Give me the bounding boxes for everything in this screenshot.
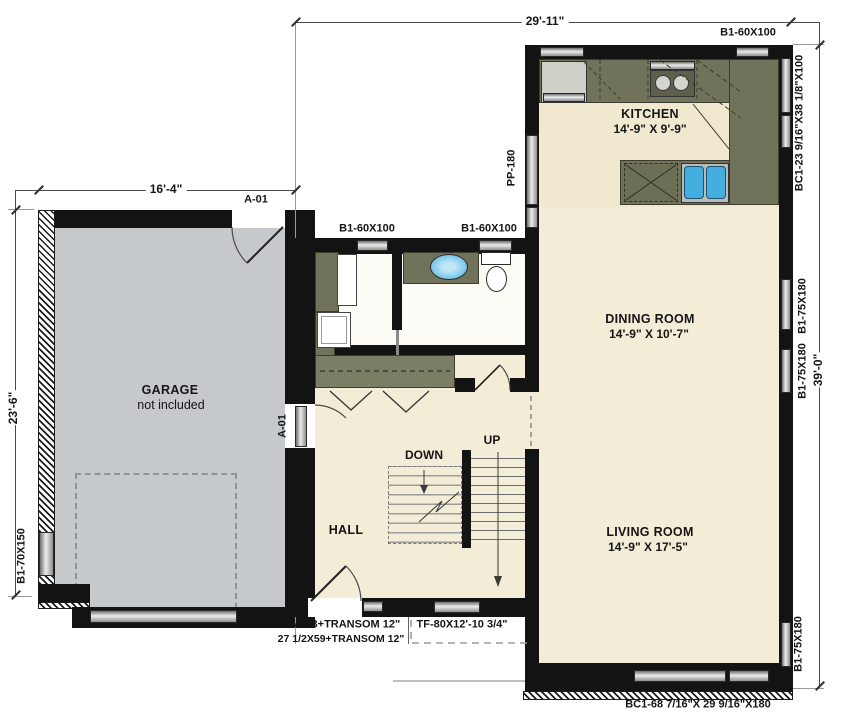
- living-size: 14'-9" X 17'-5": [608, 541, 688, 555]
- dining-window-a: [781, 279, 791, 330]
- door-label-garage-rear: A-01: [244, 194, 268, 207]
- ext-line-right-bottom: [793, 688, 824, 689]
- living-left-wall: [525, 449, 539, 692]
- garage-rear-door-opening: [232, 210, 285, 228]
- bath-sink: [430, 254, 468, 280]
- garage-left-window: [39, 532, 54, 576]
- garage-name: GARAGE: [142, 383, 199, 397]
- sink-bowl-left: [684, 166, 704, 199]
- dim-overall-width: 29'-11": [522, 14, 569, 30]
- mudroom-window-a: [357, 240, 388, 251]
- door-label-garage-hall: A-01: [277, 414, 290, 438]
- pp180-window-a: [526, 135, 538, 205]
- bc1-kitchen-window-a: [781, 58, 791, 113]
- hall-name: HALL: [329, 523, 364, 537]
- window-label-mud-b: B1-60X100: [461, 223, 517, 236]
- mudroom-window-b: [479, 240, 512, 251]
- fridge-front: [543, 93, 585, 102]
- living-right-window: [781, 622, 791, 667]
- stair-down-label: DOWN: [405, 449, 443, 463]
- living-bottom-window-a: [634, 670, 726, 682]
- washer-inner: [321, 316, 347, 344]
- ext-line-garage-right: [295, 190, 296, 210]
- living-name: LIVING ROOM: [606, 525, 693, 539]
- dim-tick: [11, 205, 21, 215]
- garage-bottom-left-wall: [38, 584, 90, 602]
- laundry-cabinet: [315, 252, 339, 312]
- kitchen-top-window: [540, 47, 584, 57]
- dining-name: DINING ROOM: [605, 312, 694, 326]
- pocket-door: [396, 330, 399, 356]
- dim-garage-width: 16'-4": [146, 182, 187, 198]
- laundry-appliance: [337, 254, 357, 306]
- dim-garage-depth: 23'-6": [3, 391, 25, 426]
- bath-laundry-divider-wall: [392, 252, 402, 330]
- stair-up-flight: [471, 450, 525, 548]
- tf-window-label: TF-80X12'-10 3/4": [417, 619, 508, 632]
- dining-window-b: [781, 349, 791, 393]
- window-label-dining-a: B1-75X180: [797, 278, 810, 334]
- kitchen-name: KITCHEN: [621, 107, 679, 121]
- window-label-mud-a: B1-60X100: [339, 223, 395, 236]
- garage-door-panel: [90, 610, 237, 623]
- stove-back: [650, 61, 695, 70]
- window-label-dining-b: B1-75X180: [797, 343, 810, 399]
- dishwasher: [624, 163, 678, 202]
- burner-right: [673, 75, 689, 91]
- entry-sidelite-window: [363, 601, 383, 612]
- window-label-top-right: B1-60X100: [720, 27, 776, 40]
- window-label-bc1-living: BC1-68 7/16"X 29 9/16"X180: [625, 699, 771, 712]
- window-label-bc1-kitchen: BC1-23 9/16"X38 1/8"X100: [794, 55, 807, 191]
- dim-tick: [815, 681, 825, 691]
- kitchen-size: 14'-9" X 9'-9": [613, 123, 686, 137]
- dim-tick: [815, 40, 825, 50]
- stair-railing: [462, 450, 471, 548]
- sink-bowl-right: [706, 166, 726, 199]
- garage-hall-door-leaf: [295, 406, 307, 447]
- dim-overall-height: 39'-0": [808, 353, 830, 388]
- pp180-window-b: [526, 207, 538, 228]
- burner-left: [655, 75, 671, 91]
- kitchen-right-counter: [729, 59, 779, 205]
- floor-plan: 29'-11" 39'-0" 16'-4" 23'-6" B1-60X100 B…: [0, 0, 852, 716]
- entry-door-label-2: 27 1/2X59+TRANSOM 12": [278, 633, 405, 645]
- living-bottom-window-b: [729, 670, 769, 682]
- ext-line-garage-top-left: [8, 209, 34, 210]
- opening-floor-patch: [525, 392, 539, 449]
- toilet-bowl: [486, 266, 507, 292]
- toilet-tank: [481, 252, 511, 265]
- window-label-garage: B1-70X150: [16, 528, 29, 584]
- garage-door-swing-outline: [75, 473, 237, 609]
- top-right-window: [736, 47, 769, 57]
- bc1-kitchen-window-b: [781, 115, 791, 148]
- closet-front-stub-left: [455, 378, 475, 392]
- closet-front-stub-right: [510, 378, 539, 392]
- window-label-living: B1-75X180: [793, 616, 806, 672]
- entry-door-label-1: A-13+TRANSOM 12": [294, 619, 400, 632]
- closet-shelf: [315, 355, 455, 388]
- label-box-divider: [408, 617, 409, 644]
- entry-door-opening: [308, 598, 362, 617]
- window-label-pp180: PP-180: [506, 150, 519, 187]
- garage-note: not included: [137, 398, 204, 412]
- tf-window: [434, 601, 480, 613]
- stair-down-flight: [388, 466, 462, 544]
- stair-up-label: UP: [484, 434, 501, 448]
- dim-tick: [11, 590, 21, 600]
- dining-size: 14'-9" X 10'-7": [609, 328, 689, 342]
